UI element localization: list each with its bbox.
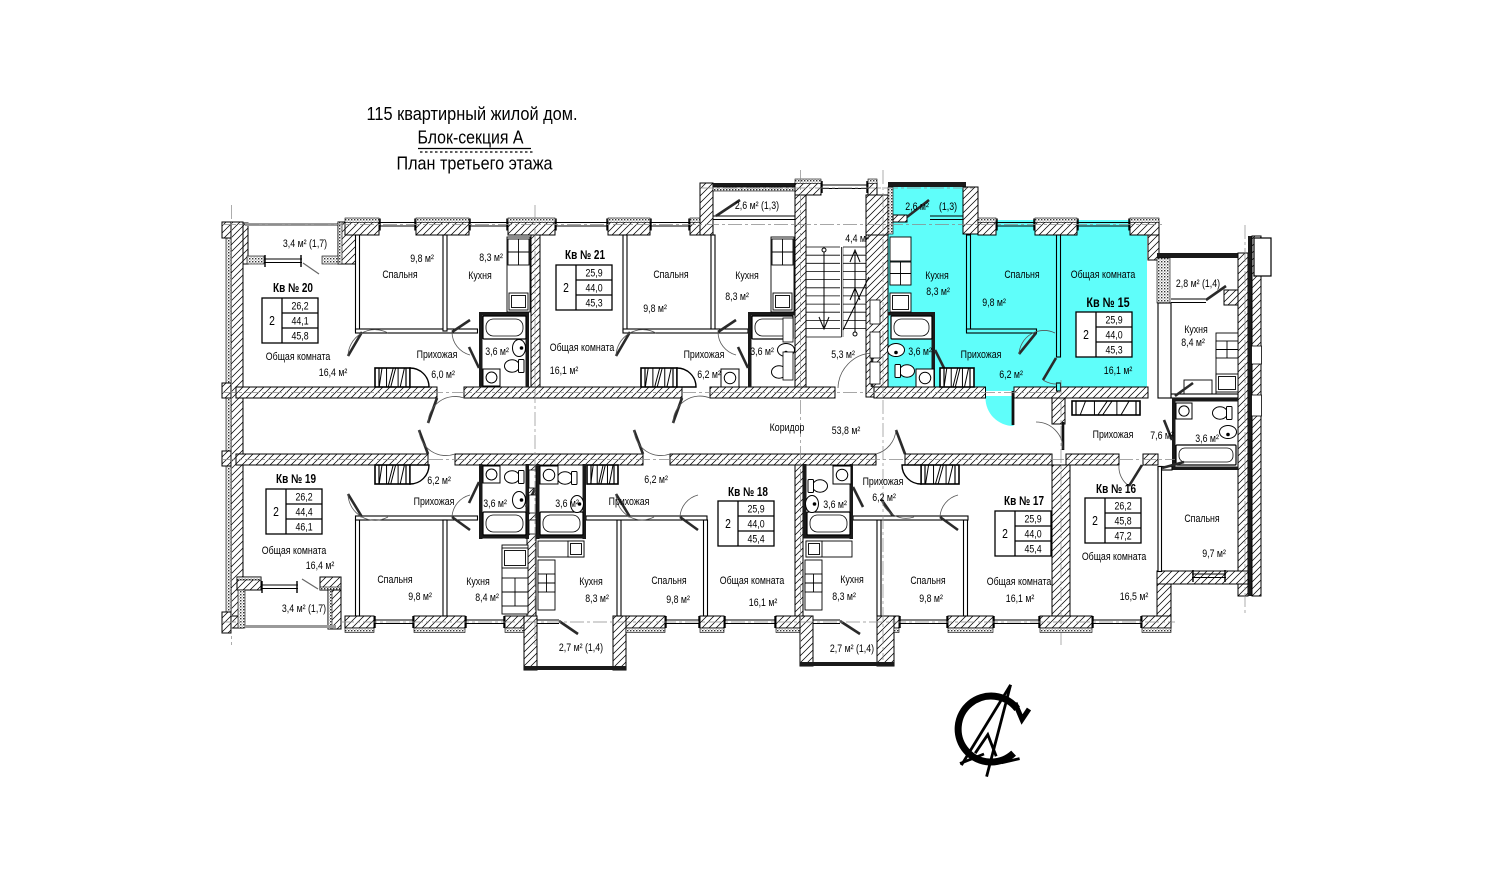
svg-text:45,4: 45,4 xyxy=(747,534,765,546)
svg-text:8,4 м²: 8,4 м² xyxy=(475,592,499,604)
svg-text:Общая комната: Общая комната xyxy=(987,576,1052,588)
svg-text:9,8 м²: 9,8 м² xyxy=(408,591,432,603)
svg-text:45,4: 45,4 xyxy=(1024,544,1042,556)
svg-text:16,4 м²: 16,4 м² xyxy=(319,367,348,379)
svg-text:Спальня: Спальня xyxy=(1004,269,1039,281)
svg-text:3,6 м²: 3,6 м² xyxy=(555,498,579,510)
svg-text:Прихожая: Прихожая xyxy=(417,349,458,361)
svg-text:2: 2 xyxy=(1002,527,1008,541)
svg-text:26,2: 26,2 xyxy=(1114,501,1132,513)
svg-text:44,1: 44,1 xyxy=(291,316,309,328)
svg-text:Прихожая: Прихожая xyxy=(1093,429,1134,441)
svg-text:44,0: 44,0 xyxy=(1024,529,1042,541)
svg-text:Общая комната: Общая комната xyxy=(266,351,331,363)
svg-text:45,8: 45,8 xyxy=(291,331,309,343)
svg-text:3,4 м² (1,7): 3,4 м² (1,7) xyxy=(283,238,327,250)
svg-text:53,8 м²: 53,8 м² xyxy=(832,425,861,437)
svg-text:3,6 м²: 3,6 м² xyxy=(1195,433,1219,445)
svg-text:2: 2 xyxy=(1083,328,1089,342)
svg-text:6,2 м²: 6,2 м² xyxy=(427,475,451,487)
svg-text:3,6 м²: 3,6 м² xyxy=(750,346,774,358)
svg-text:8,3 м²: 8,3 м² xyxy=(479,252,503,264)
svg-text:44,4: 44,4 xyxy=(295,507,313,519)
svg-text:Кухня: Кухня xyxy=(468,270,492,282)
svg-text:Спальня: Спальня xyxy=(1184,513,1219,525)
svg-text:Прихожая: Прихожая xyxy=(863,476,904,488)
svg-text:Кухня: Кухня xyxy=(925,270,949,282)
svg-text:Спальня: Спальня xyxy=(377,574,412,586)
svg-text:Кв № 16: Кв № 16 xyxy=(1096,483,1136,496)
svg-text:Общая комната: Общая комната xyxy=(1082,551,1147,563)
svg-text:Общая комната: Общая комната xyxy=(720,575,785,587)
svg-text:Спальня: Спальня xyxy=(382,269,417,281)
svg-text:7,6 м²: 7,6 м² xyxy=(1150,430,1174,442)
svg-text:Блок-секция А: Блок-секция А xyxy=(418,127,525,148)
svg-text:16,1 м²: 16,1 м² xyxy=(1104,365,1133,377)
svg-text:2: 2 xyxy=(273,505,279,519)
svg-text:Кухня: Кухня xyxy=(735,270,759,282)
svg-text:Общая комната: Общая комната xyxy=(262,545,327,557)
svg-text:2,7 м² (1,4): 2,7 м² (1,4) xyxy=(559,642,603,654)
svg-text:Прихожая: Прихожая xyxy=(684,349,725,361)
svg-text:План третьего этажа: План третьего этажа xyxy=(397,153,554,174)
svg-text:45,3: 45,3 xyxy=(1105,345,1123,357)
svg-text:2,6 м² (1,3): 2,6 м² (1,3) xyxy=(735,200,779,212)
svg-text:Кв № 19: Кв № 19 xyxy=(276,473,316,486)
svg-text:115 квартирный жилой дом.: 115 квартирный жилой дом. xyxy=(367,103,578,124)
svg-text:6,2 м²: 6,2 м² xyxy=(872,492,896,504)
svg-text:9,7 м²: 9,7 м² xyxy=(1202,548,1226,560)
svg-text:16,5 м²: 16,5 м² xyxy=(1120,591,1149,603)
svg-text:3,6 м²: 3,6 м² xyxy=(908,346,932,358)
svg-text:Коридор: Коридор xyxy=(770,422,805,434)
svg-text:Кв № 20: Кв № 20 xyxy=(273,282,313,295)
svg-text:16,1 м²: 16,1 м² xyxy=(749,597,778,609)
svg-text:8,3 м²: 8,3 м² xyxy=(725,291,749,303)
svg-text:25,9: 25,9 xyxy=(585,268,603,280)
svg-text:8,3 м²: 8,3 м² xyxy=(926,286,950,298)
svg-text:45,3: 45,3 xyxy=(585,298,603,310)
svg-text:Общая комната: Общая комната xyxy=(1071,269,1136,281)
svg-text:Кв № 18: Кв № 18 xyxy=(728,486,768,499)
svg-text:9,8 м²: 9,8 м² xyxy=(982,297,1006,309)
svg-text:Кухня: Кухня xyxy=(466,576,490,588)
svg-text:8,4 м²: 8,4 м² xyxy=(1181,337,1205,349)
svg-text:16,1 м²: 16,1 м² xyxy=(1006,593,1035,605)
svg-text:3,6 м²: 3,6 м² xyxy=(823,499,847,511)
svg-text:Спальня: Спальня xyxy=(910,575,945,587)
svg-text:6,0 м²: 6,0 м² xyxy=(431,369,455,381)
svg-text:9,8 м²: 9,8 м² xyxy=(643,303,667,315)
svg-text:6,2 м²: 6,2 м² xyxy=(644,474,668,486)
svg-text:8,3 м²: 8,3 м² xyxy=(832,591,856,603)
svg-text:Общая комната: Общая комната xyxy=(550,342,615,354)
svg-text:16,1 м²: 16,1 м² xyxy=(550,365,579,377)
svg-text:44,0: 44,0 xyxy=(585,283,603,295)
svg-text:4,4 м²: 4,4 м² xyxy=(845,233,869,245)
svg-text:26,2: 26,2 xyxy=(295,492,313,504)
svg-text:Кв № 15: Кв № 15 xyxy=(1086,295,1129,310)
svg-text:3,6 м²: 3,6 м² xyxy=(483,498,507,510)
svg-text:Кухня: Кухня xyxy=(579,576,603,588)
svg-text:6,2 м²: 6,2 м² xyxy=(697,369,721,381)
svg-text:(1,3): (1,3) xyxy=(939,201,957,213)
svg-text:25,9: 25,9 xyxy=(1105,315,1123,327)
svg-text:Прихожая: Прихожая xyxy=(414,496,455,508)
svg-text:2,7 м² (1,4): 2,7 м² (1,4) xyxy=(830,643,874,655)
svg-text:Спальня: Спальня xyxy=(653,269,688,281)
svg-text:44,0: 44,0 xyxy=(1105,330,1123,342)
svg-text:26,2: 26,2 xyxy=(291,301,309,313)
svg-text:47,2: 47,2 xyxy=(1114,531,1132,543)
svg-text:2: 2 xyxy=(1092,514,1098,528)
svg-text:25,9: 25,9 xyxy=(1024,514,1042,526)
svg-text:Кухня: Кухня xyxy=(1184,324,1208,336)
svg-text:16,4 м²: 16,4 м² xyxy=(306,560,335,572)
svg-text:2: 2 xyxy=(563,281,569,295)
svg-text:2,6 м²: 2,6 м² xyxy=(905,201,929,213)
svg-text:3,4 м² (1,7): 3,4 м² (1,7) xyxy=(282,603,326,615)
svg-text:2: 2 xyxy=(269,314,275,328)
svg-text:Кв № 21: Кв № 21 xyxy=(565,249,605,262)
svg-text:2,8 м² (1,4): 2,8 м² (1,4) xyxy=(1176,278,1220,290)
svg-text:9,8 м²: 9,8 м² xyxy=(666,594,690,606)
svg-text:Прихожая: Прихожая xyxy=(609,496,650,508)
svg-text:Кв № 17: Кв № 17 xyxy=(1004,495,1044,508)
svg-text:5,3 м²: 5,3 м² xyxy=(831,349,855,361)
svg-text:9,8 м²: 9,8 м² xyxy=(919,593,943,605)
svg-text:Спальня: Спальня xyxy=(651,575,686,587)
svg-text:9,8 м²: 9,8 м² xyxy=(410,253,434,265)
svg-text:3,6 м²: 3,6 м² xyxy=(485,346,509,358)
svg-text:Кухня: Кухня xyxy=(840,574,864,586)
svg-text:6,2 м²: 6,2 м² xyxy=(999,369,1023,381)
svg-text:25,9: 25,9 xyxy=(747,504,765,516)
svg-text:46,1: 46,1 xyxy=(295,522,313,534)
svg-text:45,8: 45,8 xyxy=(1114,516,1132,528)
svg-text:44,0: 44,0 xyxy=(747,519,765,531)
svg-text:Прихожая: Прихожая xyxy=(961,349,1002,361)
svg-text:8,3 м²: 8,3 м² xyxy=(585,593,609,605)
svg-text:2: 2 xyxy=(725,517,731,531)
